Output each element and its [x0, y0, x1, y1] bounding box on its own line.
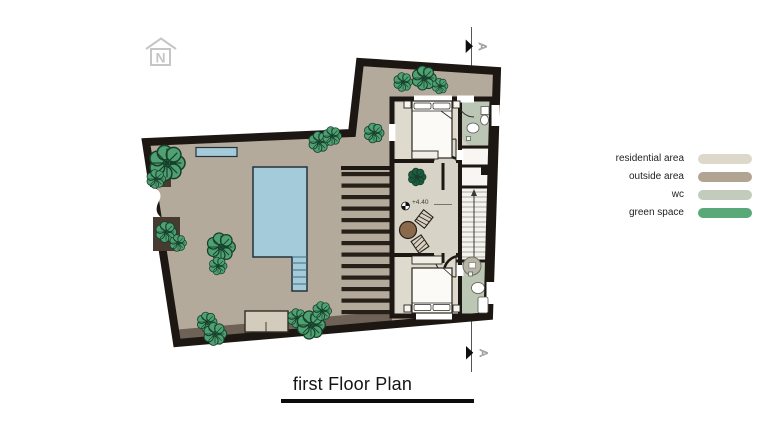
shower-tray: [478, 297, 488, 313]
toilet-icon: [472, 283, 485, 294]
bench: [245, 311, 288, 332]
north-indicator-icon: N: [146, 39, 176, 66]
legend-label: wc: [672, 189, 684, 200]
level-label: +4.40: [412, 199, 429, 206]
legend-swatch: [698, 190, 752, 200]
round-table: [400, 222, 417, 239]
floor-drain: [467, 137, 471, 141]
building: +4.40: [140, 62, 500, 343]
legend-item-residential: residential area: [566, 153, 752, 164]
legend-label: green space: [629, 207, 684, 218]
title-underline: [281, 399, 474, 403]
section-letter: A: [477, 349, 489, 357]
legend-item-green-space: green space: [566, 207, 752, 218]
floor-drain: [469, 272, 473, 276]
section-marker-bottom: A: [466, 316, 489, 372]
page-title: first Floor Plan: [250, 374, 455, 395]
legend-label: residential area: [616, 153, 684, 164]
water-feature: [196, 148, 237, 157]
section-arrow-icon: [466, 346, 473, 360]
sink-icon: [467, 123, 479, 133]
legend-swatch: [698, 154, 752, 164]
staircase: [461, 188, 489, 262]
section-letter: A: [476, 43, 488, 51]
toilet-cistern: [481, 107, 489, 115]
legend-item-outside: outside area: [566, 171, 752, 182]
legend: residential area outside area wc green s…: [566, 153, 752, 225]
toilet-icon: [481, 115, 489, 125]
potted-plant: [409, 168, 427, 186]
legend-swatch: [698, 208, 752, 218]
legend-swatch: [698, 172, 752, 182]
legend-label: outside area: [629, 171, 684, 182]
legend-item-wc: wc: [566, 189, 752, 200]
north-letter: N: [155, 50, 165, 66]
floor-plan-sheet: { "title": { "text": "first Floor Plan" …: [0, 0, 768, 433]
bed-1: [404, 101, 460, 159]
